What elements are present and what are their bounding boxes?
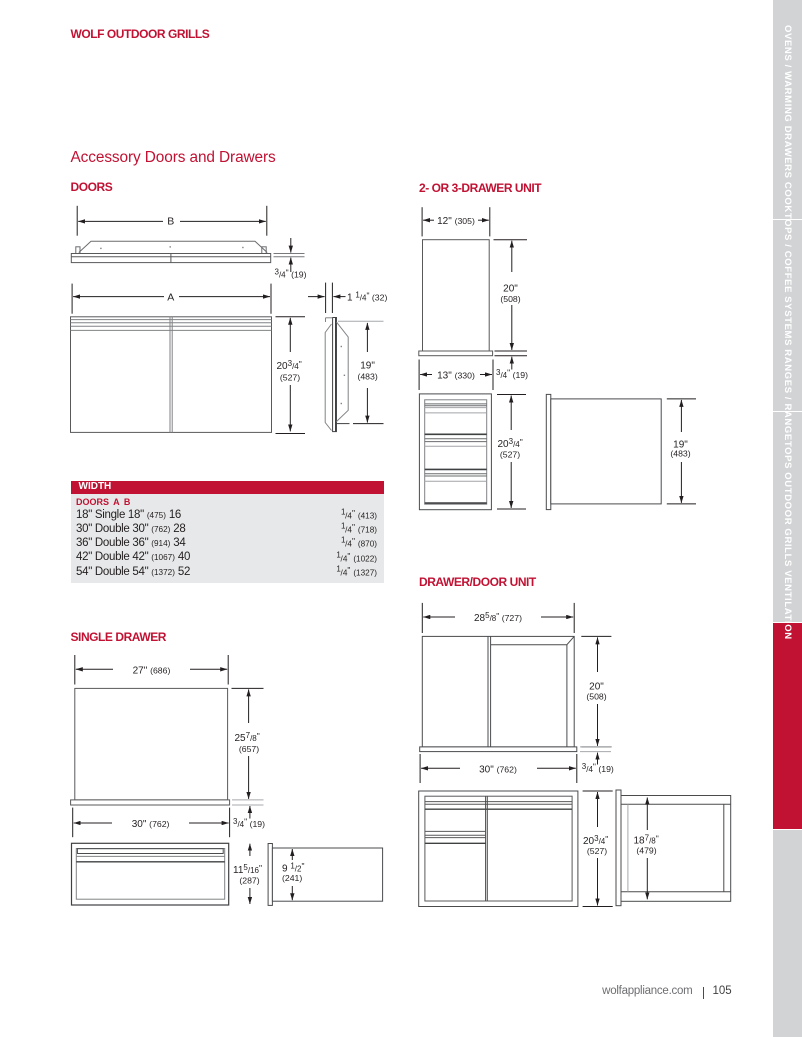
svg-text:30" (762): 30" (762) xyxy=(132,819,170,830)
svg-text:19": 19" xyxy=(360,361,375,372)
svg-text:(508): (508) xyxy=(586,692,606,702)
svg-text:12" (305): 12" (305) xyxy=(437,216,475,227)
svg-text:203/4": 203/4" xyxy=(277,359,302,372)
svg-text:3/4" (19): 3/4" (19) xyxy=(233,817,265,829)
svg-text:(287): (287) xyxy=(239,876,259,886)
svg-text:(657): (657) xyxy=(239,744,259,754)
svg-text:(483): (483) xyxy=(357,372,377,382)
svg-text:B: B xyxy=(167,216,174,228)
svg-text:(483): (483) xyxy=(670,449,690,459)
svg-text:3/4" (19): 3/4" (19) xyxy=(496,368,528,380)
svg-text:(479): (479) xyxy=(636,846,656,856)
svg-text:13" (330): 13" (330) xyxy=(437,371,475,382)
svg-text:115/16": 115/16" xyxy=(233,863,262,876)
svg-text:203/4": 203/4" xyxy=(498,437,523,450)
svg-text:(527): (527) xyxy=(500,450,520,460)
svg-text:30" (762): 30" (762) xyxy=(479,764,517,775)
svg-text:3/4" (19): 3/4" (19) xyxy=(275,267,307,279)
svg-text:A: A xyxy=(167,291,174,303)
svg-text:1 1/4" (32): 1 1/4" (32) xyxy=(347,290,387,303)
svg-text:(241): (241) xyxy=(282,873,302,883)
svg-text:3/4" (19): 3/4" (19) xyxy=(582,762,614,774)
svg-text:(527): (527) xyxy=(587,846,607,856)
svg-text:257/8": 257/8" xyxy=(235,731,260,744)
svg-text:27" (686): 27" (686) xyxy=(133,665,171,676)
svg-text:20": 20" xyxy=(589,681,604,692)
svg-text:285/8" (727): 285/8" (727) xyxy=(474,611,522,624)
svg-text:(527): (527) xyxy=(280,373,300,383)
svg-text:20": 20" xyxy=(503,283,518,294)
svg-text:(508): (508) xyxy=(500,294,520,304)
